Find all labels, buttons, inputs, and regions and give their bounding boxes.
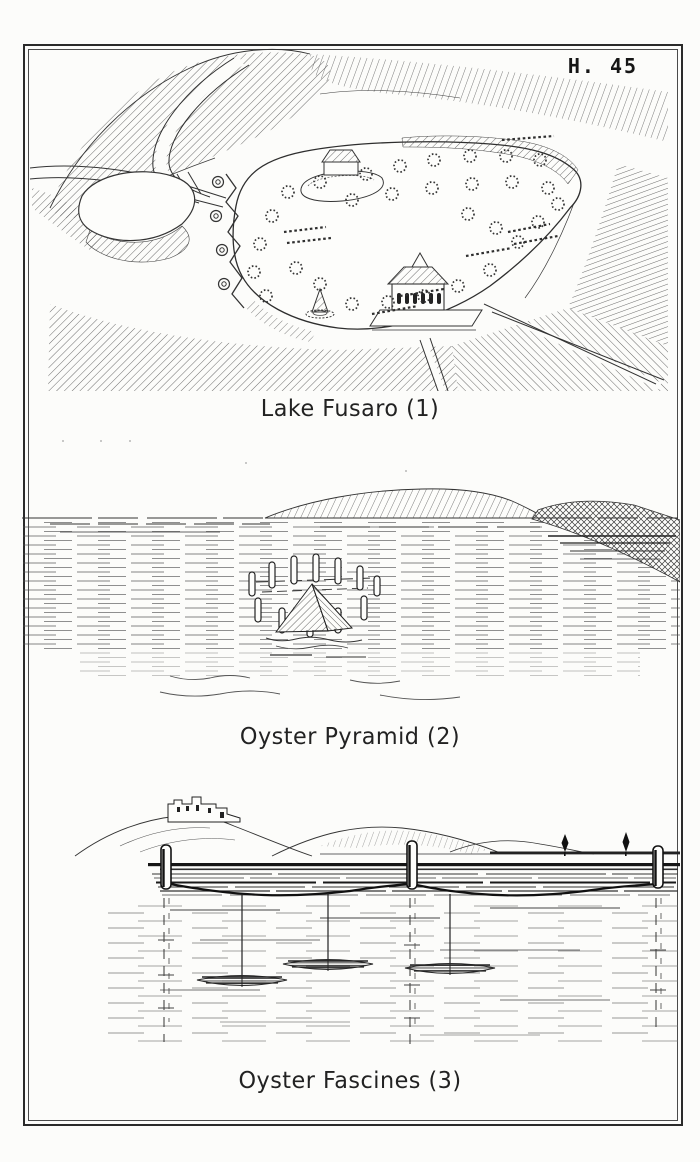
water-lines xyxy=(20,520,680,652)
scan-speckle xyxy=(62,440,64,442)
background-hills xyxy=(75,815,594,856)
rocky-islet xyxy=(79,172,195,262)
caption-oyster-fascines: Oyster Fascines (3) xyxy=(11,1068,690,1094)
figure-oyster-fascines xyxy=(20,790,680,1055)
scan-speckle xyxy=(129,440,131,442)
scan-speckle xyxy=(405,470,407,472)
foreground-waves xyxy=(160,676,460,700)
oyster-pyramid-illustration xyxy=(20,480,680,705)
oyster-fascines-illustration xyxy=(20,790,680,1055)
scan-speckle xyxy=(100,440,102,442)
scanned-plate-page: { "plate": { "number": "H. 45" }, "figur… xyxy=(0,0,700,1162)
scan-speckle xyxy=(245,462,247,464)
lake-fusaro-illustration xyxy=(20,46,680,391)
distant-shore-hill xyxy=(265,489,546,518)
figure-lake-fusaro xyxy=(20,46,680,391)
caption-lake-fusaro: Lake Fusaro (1) xyxy=(11,396,690,422)
figure-oyster-pyramid xyxy=(20,480,680,705)
far-shore-strip xyxy=(490,852,680,855)
caption-oyster-pyramid: Oyster Pyramid (2) xyxy=(11,724,690,750)
mid-hill-hatch xyxy=(320,831,488,854)
water-lines-faint xyxy=(80,652,640,678)
deep-water-lines xyxy=(108,900,678,1042)
castle-silhouette xyxy=(168,797,240,822)
